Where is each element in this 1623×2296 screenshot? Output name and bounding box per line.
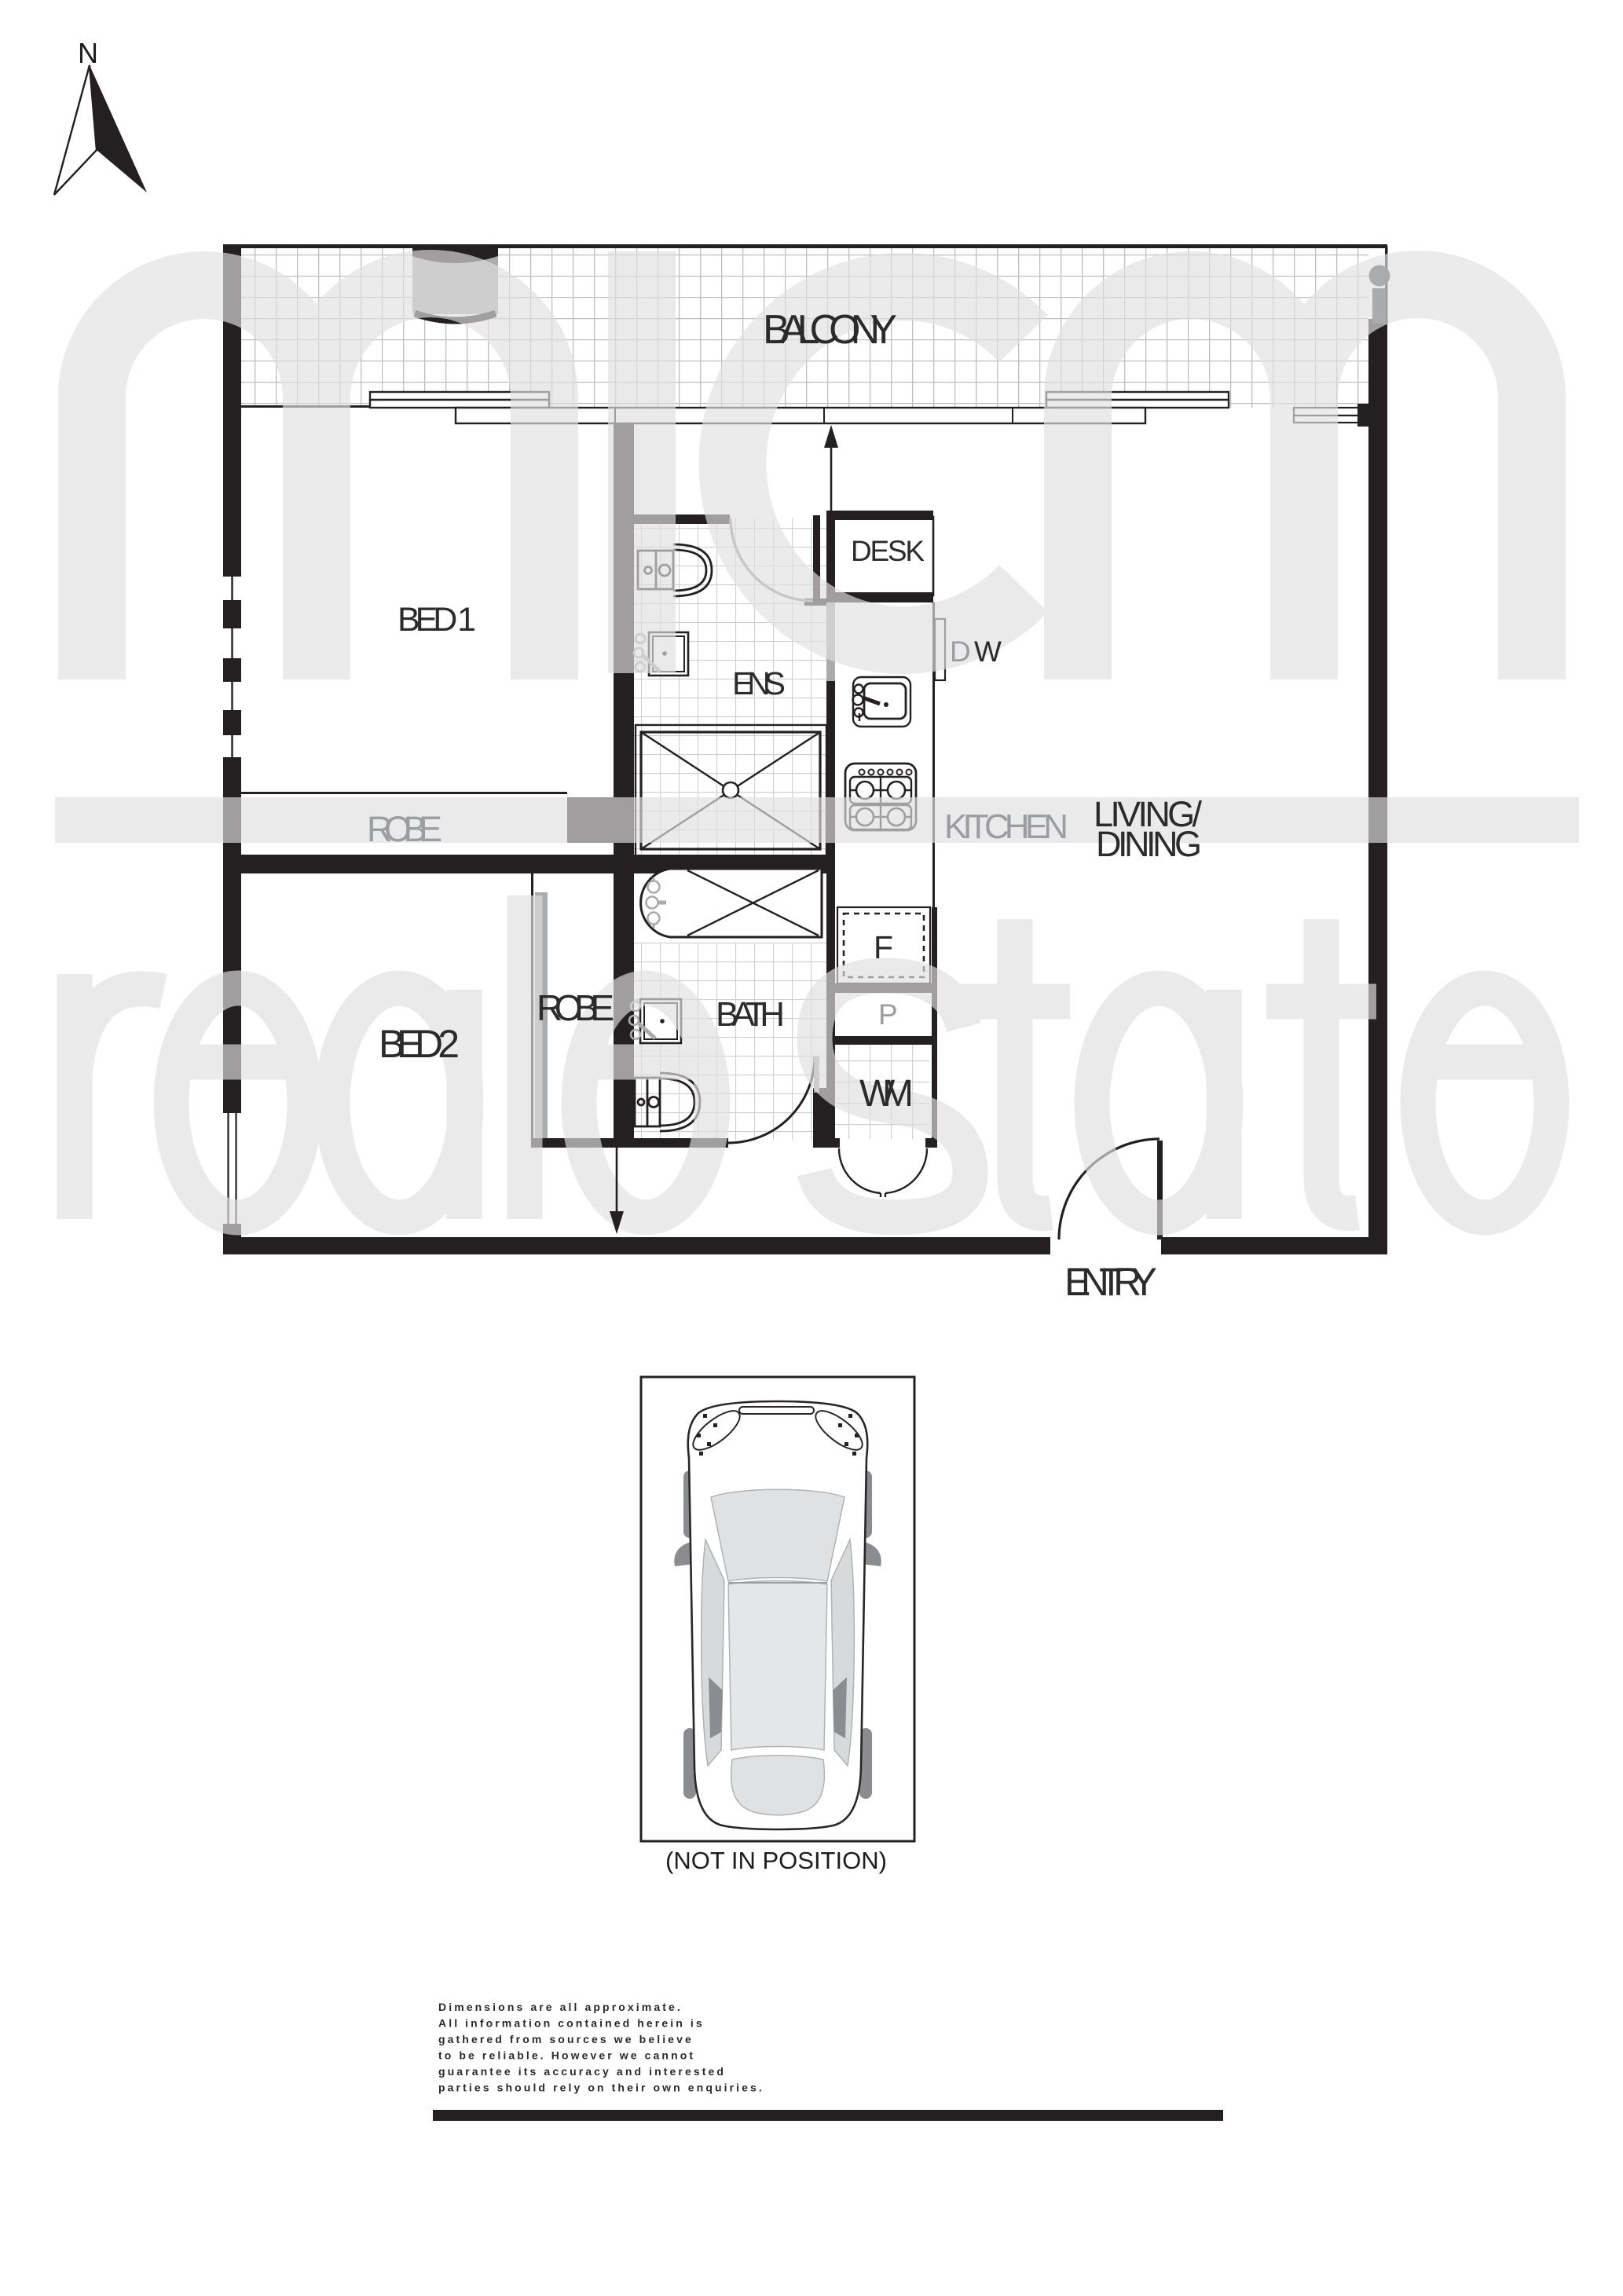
- svg-text:WM: WM: [859, 1073, 914, 1115]
- svg-text:ROBE: ROBE: [537, 987, 614, 1028]
- svg-text:ROBE: ROBE: [367, 809, 442, 849]
- svg-text:D: D: [950, 635, 971, 668]
- svg-text:N: N: [78, 37, 98, 69]
- svg-text:(NOT IN POSITION): (NOT IN POSITION): [665, 1847, 887, 1874]
- svg-text:BATH: BATH: [716, 995, 785, 1034]
- svg-text:BED 2: BED 2: [379, 1022, 460, 1066]
- svg-text:ENS: ENS: [732, 665, 786, 701]
- svg-text:P: P: [878, 998, 898, 1031]
- svg-text:All information contained here: All information contained herein is: [438, 2017, 705, 2030]
- svg-text:to be reliable. However we can: to be reliable. However we cannot: [438, 2049, 695, 2062]
- svg-text:BED 1: BED 1: [398, 601, 476, 639]
- svg-text:Dimensions are all approximate: Dimensions are all approximate.: [438, 2001, 683, 2013]
- svg-text:W: W: [974, 635, 1002, 668]
- svg-text:DINING: DINING: [1096, 824, 1202, 864]
- svg-text:F: F: [874, 929, 893, 965]
- svg-text:KITCHEN: KITCHEN: [944, 807, 1068, 846]
- svg-text:ENTRY: ENTRY: [1064, 1260, 1157, 1304]
- svg-text:DESK: DESK: [851, 535, 925, 567]
- svg-text:gathered from sources we belie: gathered from sources we believe: [438, 2033, 694, 2045]
- svg-text:BALCONY: BALCONY: [763, 307, 897, 353]
- svg-text:parties should rely on their o: parties should rely on their own enquiri…: [438, 2082, 764, 2094]
- svg-text:guarantee its accuracy and int: guarantee its accuracy and interested: [438, 2065, 726, 2078]
